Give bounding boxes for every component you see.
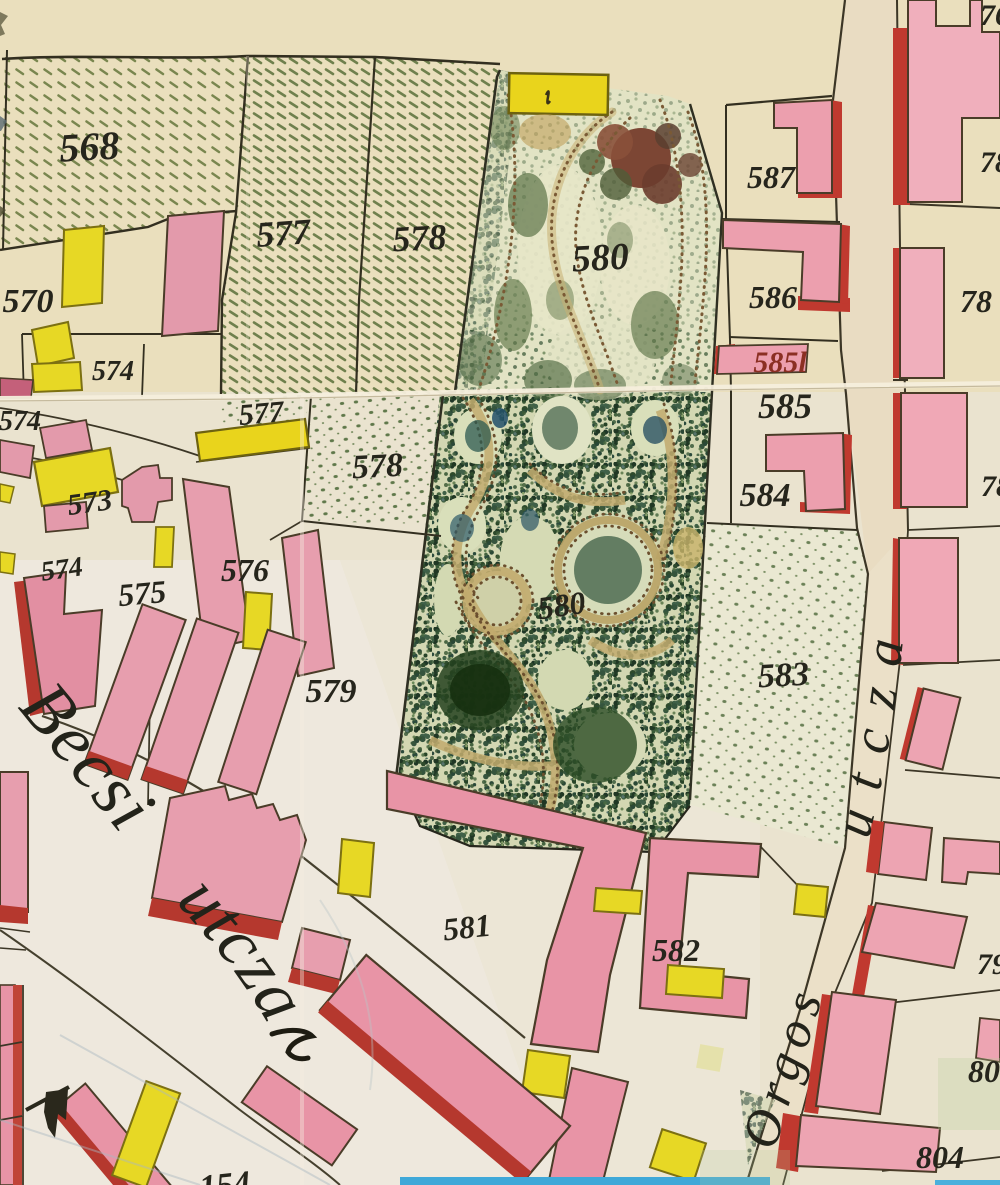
svg-text:574: 574 bbox=[0, 406, 41, 437]
svg-text:573: 573 bbox=[65, 483, 114, 522]
svg-text:800: 800 bbox=[968, 1053, 1000, 1089]
svg-text:79: 79 bbox=[977, 948, 1000, 981]
svg-text:587: 587 bbox=[747, 159, 797, 195]
svg-text:804: 804 bbox=[916, 1139, 964, 1175]
svg-text:78: 78 bbox=[960, 283, 992, 319]
svg-text:585: 585 bbox=[758, 386, 812, 426]
svg-text:574: 574 bbox=[92, 356, 134, 387]
svg-text:568: 568 bbox=[58, 122, 120, 170]
svg-text:577: 577 bbox=[237, 395, 286, 432]
svg-text:577: 577 bbox=[255, 211, 314, 255]
svg-text:584: 584 bbox=[740, 477, 791, 514]
svg-text:76: 76 bbox=[980, 0, 1000, 32]
svg-text:583: 583 bbox=[757, 656, 810, 696]
svg-text:581: 581 bbox=[441, 907, 493, 948]
svg-text:579: 579 bbox=[306, 673, 357, 710]
svg-text:580: 580 bbox=[571, 236, 630, 281]
svg-text:574: 574 bbox=[39, 551, 85, 588]
svg-text:570: 570 bbox=[3, 283, 54, 320]
svg-text:78: 78 bbox=[981, 470, 1000, 503]
svg-text:78: 78 bbox=[980, 146, 1000, 179]
svg-text:575: 575 bbox=[117, 573, 168, 613]
svg-text:580: 580 bbox=[535, 584, 588, 626]
svg-text:578: 578 bbox=[391, 217, 447, 260]
svg-text:585l: 585l bbox=[753, 346, 807, 379]
svg-text:576: 576 bbox=[221, 552, 269, 588]
svg-text:586: 586 bbox=[749, 279, 797, 315]
svg-text:578: 578 bbox=[351, 447, 404, 487]
svg-text:582: 582 bbox=[652, 932, 700, 968]
